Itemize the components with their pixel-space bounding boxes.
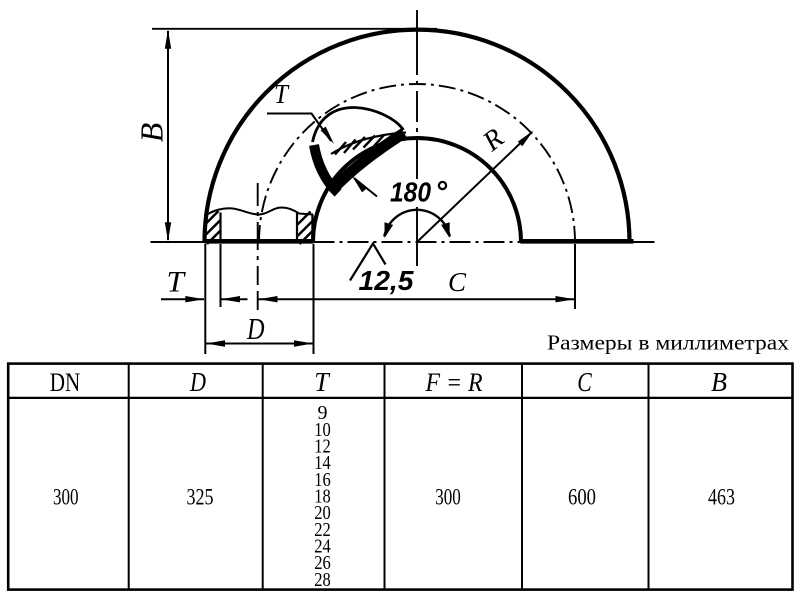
svg-text:D: D (246, 311, 264, 346)
svg-text:463: 463 (708, 485, 735, 510)
svg-text:12,5: 12,5 (359, 265, 414, 296)
svg-text:300: 300 (435, 485, 461, 510)
svg-text:F = R: F = R (425, 368, 483, 397)
svg-text:C: C (577, 367, 592, 397)
svg-text:T: T (274, 79, 290, 109)
svg-text:325: 325 (187, 485, 214, 510)
svg-text:T: T (314, 367, 330, 397)
svg-text:28: 28 (314, 569, 331, 591)
svg-text:B: B (711, 367, 727, 397)
svg-text:B: B (134, 123, 170, 143)
svg-text:D: D (189, 367, 206, 397)
svg-text:180: 180 (390, 177, 431, 208)
svg-text:300: 300 (53, 485, 79, 510)
svg-text:R: R (476, 123, 509, 159)
svg-text:C: C (448, 267, 467, 297)
svg-text:DN: DN (50, 368, 81, 397)
svg-text:T: T (167, 266, 187, 299)
svg-text:Размеры в миллиметрах: Размеры в миллиметрах (547, 331, 789, 355)
svg-text:600: 600 (568, 485, 596, 510)
